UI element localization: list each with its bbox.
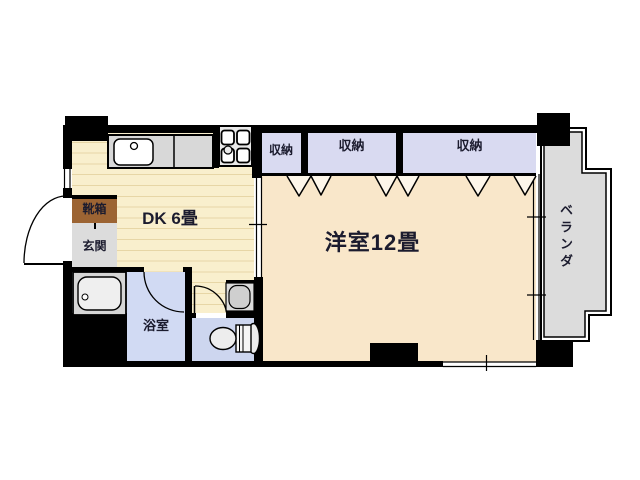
toilet-icon: [210, 324, 260, 354]
bathtub-icon: [73, 272, 126, 315]
veranda-window: [527, 174, 546, 340]
bathroom-label: 浴室: [126, 319, 186, 333]
closet-1-label: 収納: [260, 144, 302, 157]
western-room-label: 洋室12畳: [285, 231, 460, 255]
closet-2-label: 収納: [307, 139, 396, 153]
entrance-door-swing: [24, 196, 72, 264]
sliding-door-dk-western: [249, 177, 267, 277]
closet-3-label: 収納: [403, 139, 536, 153]
bottom-window: [443, 355, 536, 371]
closet-folding-door-marks: [287, 176, 536, 196]
floor-plan: 靴箱 玄関 DK 6畳 洋室12畳 収納 収納 収納 浴室 ベランダ: [0, 0, 640, 480]
washroom-door-swing: [195, 286, 228, 318]
dining-kitchen-label: DK 6畳: [110, 210, 230, 229]
kitchen-sink-icon: [114, 139, 153, 165]
bathroom-door-swing: [144, 272, 184, 312]
veranda-label: ベランダ: [548, 203, 572, 307]
stove-icon: [219, 126, 252, 166]
entrance-label: 玄関: [72, 240, 117, 253]
washbasin-icon: [226, 280, 254, 314]
kitchen-window: [65, 169, 71, 188]
